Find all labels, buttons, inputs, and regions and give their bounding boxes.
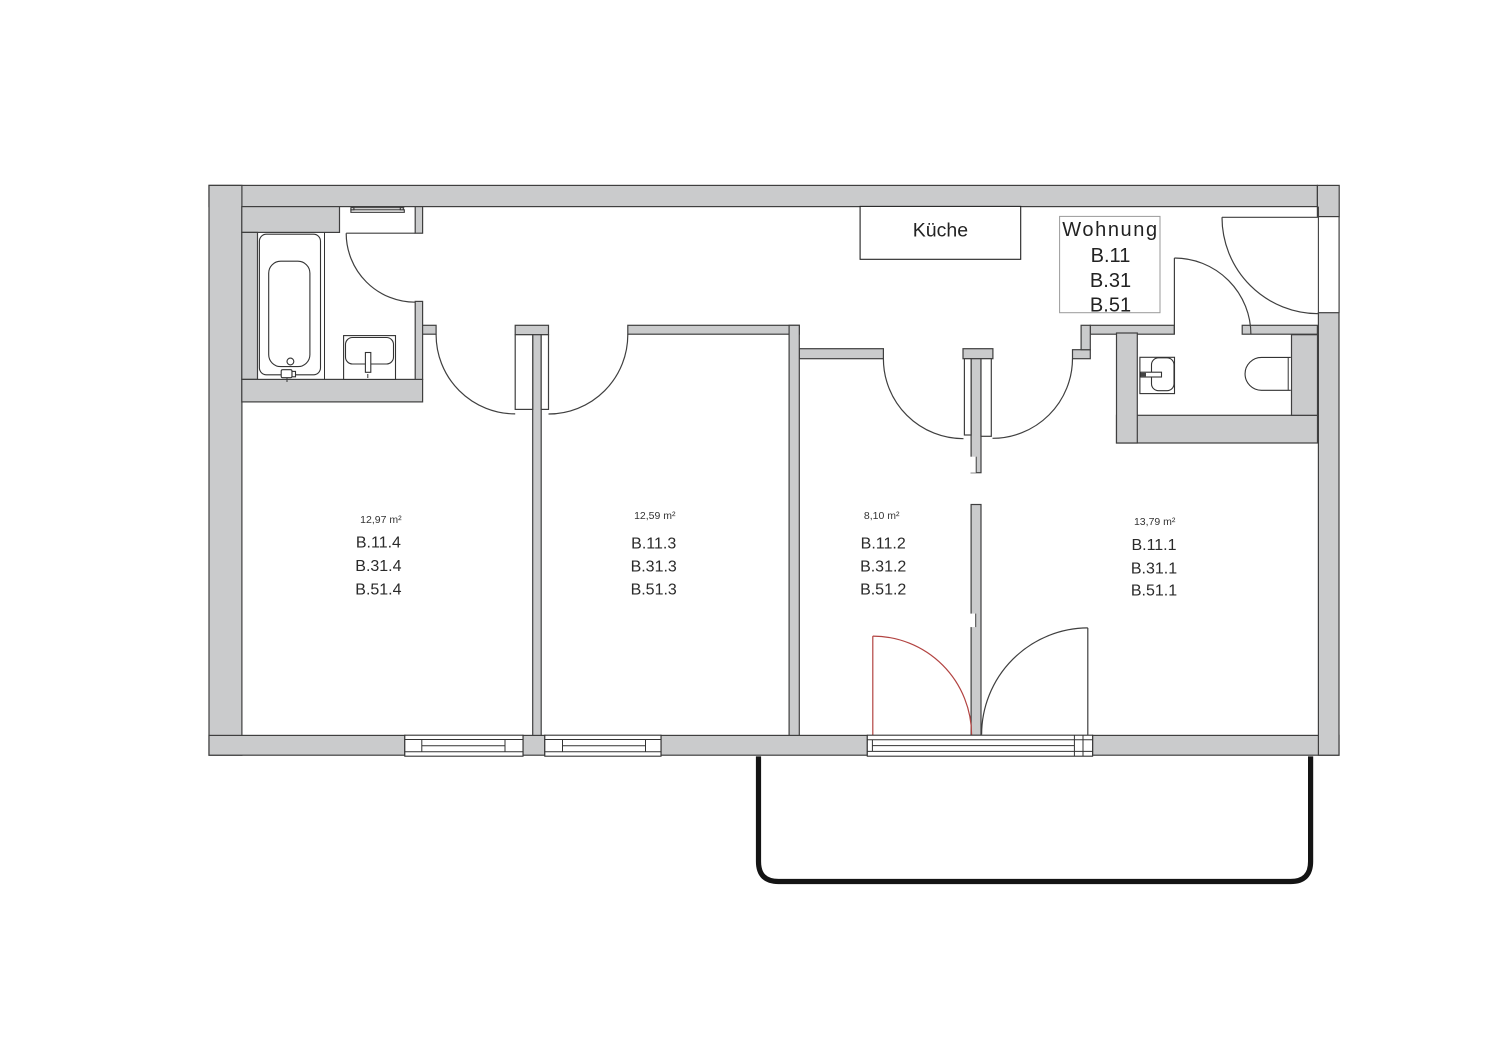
svg-text:B.31.4: B.31.4 (355, 558, 401, 575)
svg-text:B.11.2: B.11.2 (861, 535, 906, 552)
svg-text:Küche: Küche (913, 220, 968, 242)
svg-text:B.11.4: B.11.4 (356, 534, 401, 551)
svg-text:B.51.2: B.51.2 (860, 581, 906, 598)
svg-text:B.31: B.31 (1090, 270, 1131, 292)
svg-text:B.51.4: B.51.4 (355, 581, 401, 598)
svg-text:B.51: B.51 (1090, 294, 1131, 316)
svg-text:B.11.1: B.11.1 (1131, 537, 1176, 554)
svg-text:12,97 m²: 12,97 m² (360, 514, 402, 526)
svg-text:13,79 m²: 13,79 m² (1134, 516, 1176, 528)
svg-text:B.51.3: B.51.3 (631, 581, 677, 598)
svg-text:12,59 m²: 12,59 m² (634, 510, 676, 522)
svg-text:B.11.3: B.11.3 (631, 535, 676, 552)
svg-text:Wohnung: Wohnung (1062, 219, 1158, 241)
svg-text:B.31.1: B.31.1 (1131, 560, 1177, 577)
svg-text:B.31.2: B.31.2 (860, 558, 906, 575)
svg-text:B.11: B.11 (1091, 245, 1131, 267)
svg-text:B.31.3: B.31.3 (631, 558, 677, 575)
svg-text:8,10 m²: 8,10 m² (864, 510, 900, 522)
svg-text:B.51.1: B.51.1 (1131, 583, 1177, 600)
